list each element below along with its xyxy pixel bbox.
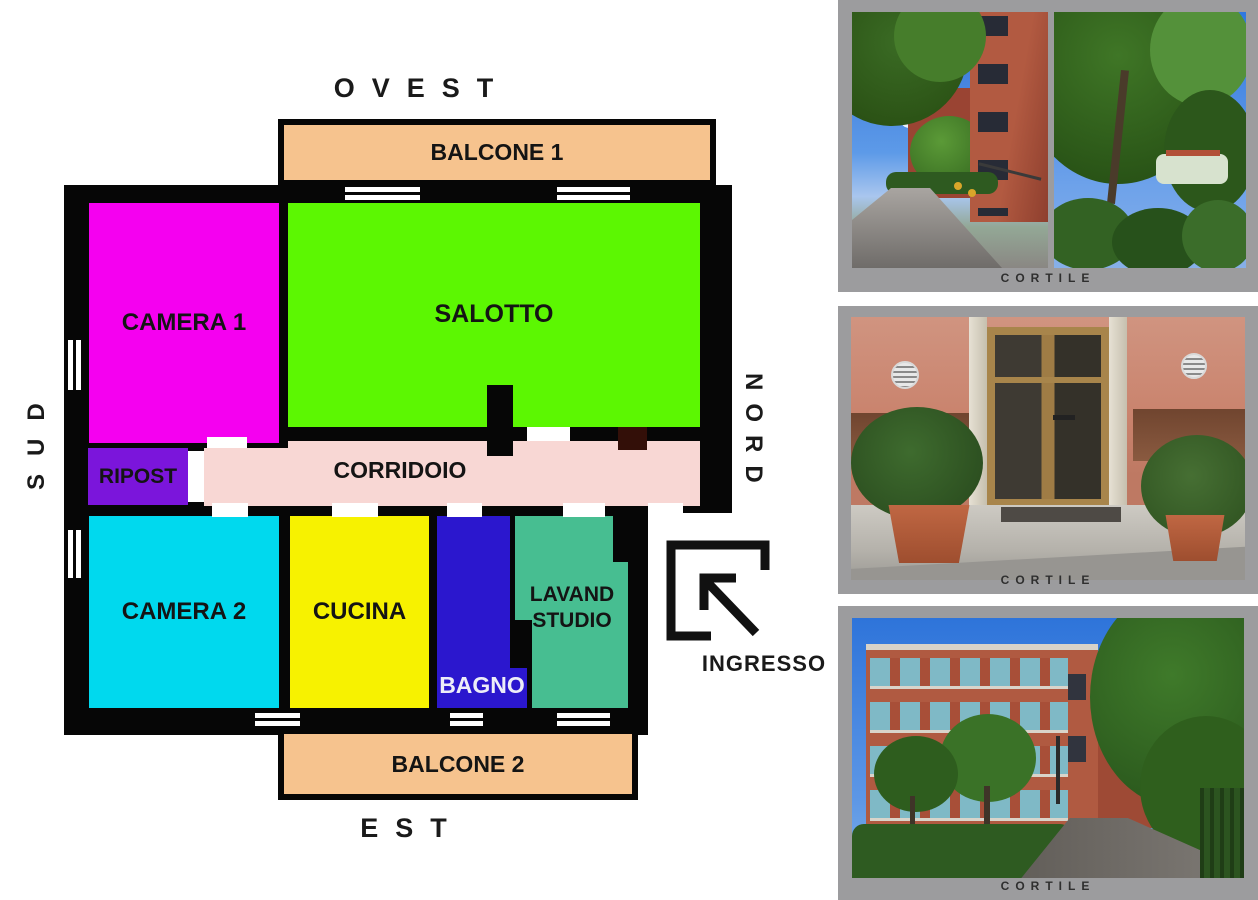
entrance-door — [987, 327, 1109, 505]
green-fence — [1200, 788, 1244, 878]
entrance-arrow-icon — [664, 539, 772, 641]
corner-window — [1068, 736, 1086, 762]
balcony-1: BALCONE 1 — [278, 119, 716, 186]
room-camera-2: CAMERA 2 — [89, 516, 279, 708]
room-lavanderia-label: LAVAND STUDIO — [512, 582, 632, 642]
door-handle — [1053, 415, 1075, 420]
distant-roof — [1166, 150, 1220, 156]
room-ripostiglio: RIPOST — [88, 448, 188, 505]
compass-south-label: SUD — [14, 372, 60, 504]
window-cucina — [255, 712, 300, 728]
door-opening-bagno — [447, 503, 482, 517]
door-opening-lavanderia — [563, 503, 605, 517]
window-band — [870, 658, 1068, 689]
potted-plant — [851, 407, 983, 519]
photo-cortile-walkway — [852, 12, 1048, 268]
roof-parapet — [866, 644, 1098, 650]
sunlit-clearing — [1156, 154, 1228, 184]
floor-plan-page: BALCONE 1 CAMERA 1 SALOTTO RIPOST CORRID… — [0, 0, 1258, 900]
photo-caption: CORTILE — [838, 271, 1258, 289]
wall-vent — [891, 361, 919, 389]
door-opening-ripostiglio — [188, 451, 204, 502]
door-transom-bar — [995, 377, 1101, 383]
room-cucina: CUCINA — [290, 516, 429, 708]
room-camera-2-label: CAMERA 2 — [122, 599, 246, 625]
room-camera-1: CAMERA 1 — [89, 203, 279, 443]
room-salotto-label: SALOTTO — [435, 301, 554, 329]
room-bagno-label: BAGNO — [435, 670, 529, 700]
photo-cortile-building — [852, 618, 1244, 878]
door-leaf — [618, 427, 647, 450]
door-opening-salotto — [527, 427, 570, 441]
photo-card-3: CORTILE — [838, 606, 1258, 900]
entrance-door-opening — [648, 503, 683, 514]
window-camera-2 — [66, 530, 81, 578]
room-lavanderia-label-line2: STUDIO — [512, 608, 632, 634]
room-corridoio-label: CORRIDOIO — [250, 452, 550, 488]
tree-foliage — [874, 736, 958, 812]
terracotta-pot — [885, 505, 973, 563]
corner-window — [1068, 674, 1086, 700]
compass-east-label: EST — [280, 810, 527, 846]
window-balcony1-right — [557, 186, 630, 201]
balcony-2-label: BALCONE 2 — [392, 751, 525, 778]
balcony-1-label: BALCONE 1 — [431, 139, 564, 166]
door-opening-camera-2 — [212, 503, 248, 517]
doormat — [1001, 507, 1121, 522]
yellow-bollard — [954, 182, 962, 190]
room-ripostiglio-label: RIPOST — [99, 465, 177, 488]
lamp-post — [1056, 736, 1060, 804]
room-camera-1-label: CAMERA 1 — [122, 310, 246, 336]
photo-caption: CORTILE — [838, 573, 1258, 591]
room-lavanderia-label-line1: LAVAND — [512, 582, 632, 608]
door-glass — [995, 335, 1101, 499]
door-opening-camera-1 — [207, 437, 247, 448]
photo-card-2: CORTILE — [838, 306, 1258, 594]
window-camera-1 — [66, 340, 81, 390]
balcony-2: BALCONE 2 — [278, 728, 638, 800]
wall-vent — [1181, 353, 1207, 379]
entrance-label: INGRESSO — [688, 650, 840, 678]
window-balcony1-left — [345, 186, 420, 201]
compass-west-label: OVEST — [250, 70, 577, 106]
room-cucina-label: CUCINA — [313, 599, 406, 625]
terracotta-pot — [1163, 515, 1227, 561]
photo-card-1: CORTILE — [838, 0, 1258, 292]
photo-cortile-entrance — [851, 317, 1245, 580]
compass-north-label: NORD — [732, 350, 774, 518]
photo-cortile-garden — [1054, 12, 1246, 268]
yellow-bollard — [968, 189, 976, 197]
photo-caption: CORTILE — [838, 879, 1258, 897]
wall-stub — [487, 385, 513, 456]
bush — [1182, 200, 1246, 268]
window-bagno — [450, 712, 483, 728]
door-opening-cucina — [332, 503, 378, 517]
window-lavanderia — [557, 712, 610, 728]
marble-pillar — [1109, 317, 1127, 505]
